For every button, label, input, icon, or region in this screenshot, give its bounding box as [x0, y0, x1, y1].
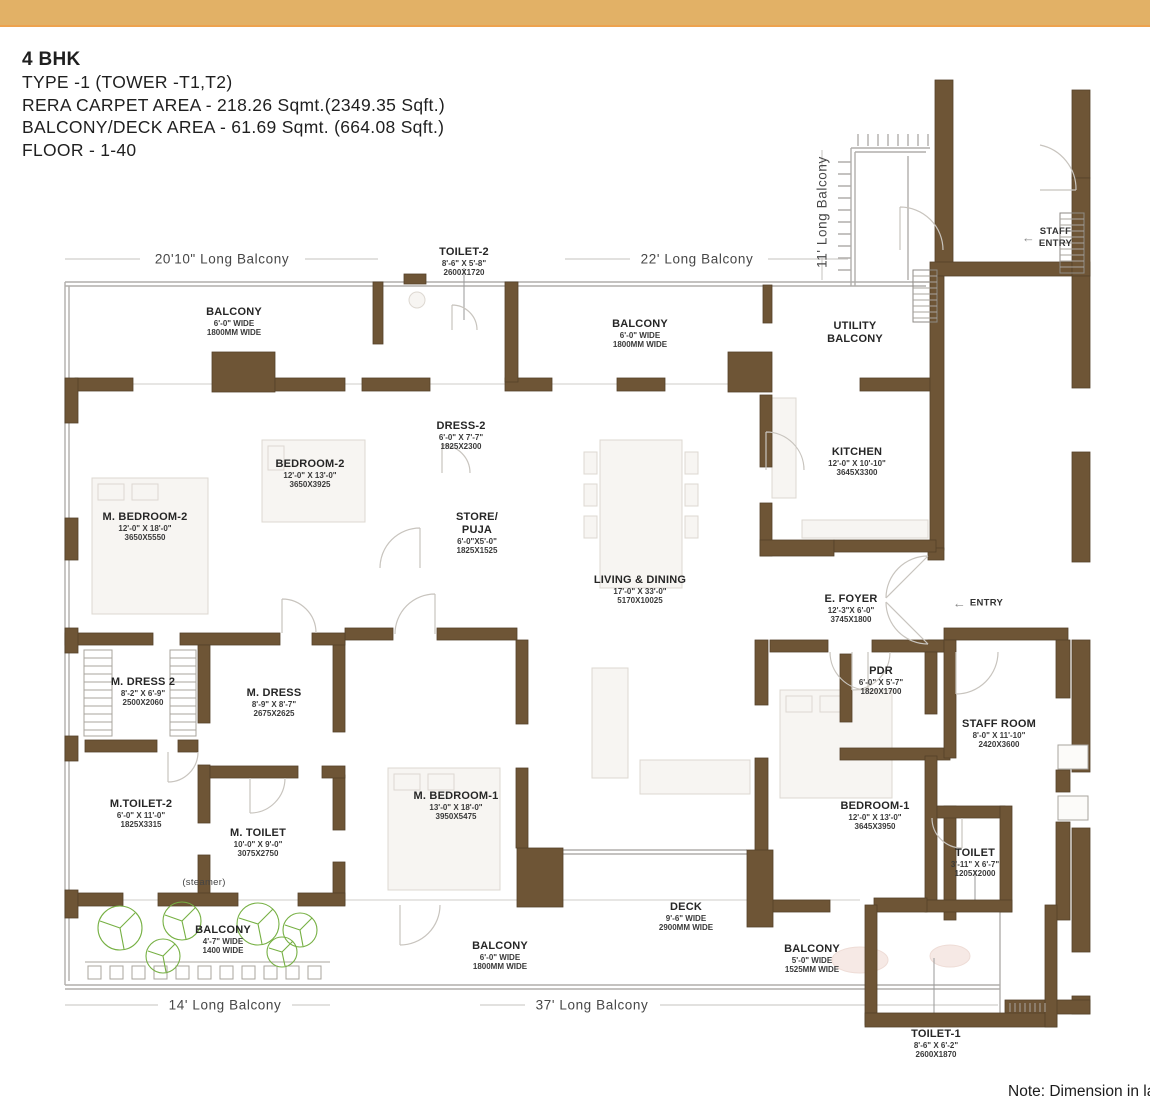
room-dimension: 6'-0" X 7'-7" [436, 433, 485, 442]
room-name: BALCONY [195, 924, 251, 937]
room-name: PUJA [456, 524, 498, 537]
room-dimension: 1525MM WIDE [784, 965, 840, 974]
room-name: BEDROOM-2 [275, 458, 344, 471]
room-dimension: 8'-6" X 5'-8" [439, 259, 489, 268]
room-label-deck: DECK9'-6" WIDE2900MM WIDE [659, 901, 713, 933]
room-dimension: 3650X3925 [275, 480, 344, 489]
room-label-balcony-bottom-right: BALCONY5'-0" WIDE1525MM WIDE [784, 943, 840, 975]
room-name: BEDROOM-1 [840, 800, 909, 813]
room-dimension: 12'-0" X 13'-0" [275, 471, 344, 480]
room-name: PDR [859, 665, 903, 678]
room-dimension: 2900MM WIDE [659, 923, 713, 932]
room-label-m-dress: M. DRESS8'-9" X 8'-7"2675X2625 [247, 687, 302, 719]
room-name: STORE/ [456, 511, 498, 524]
room-dimension: 13'-0" X 18'-0" [414, 803, 499, 812]
room-name: TOILET-1 [911, 1028, 961, 1041]
annotation-text: (steamer) [182, 877, 225, 889]
room-name: M. TOILET [230, 827, 286, 840]
room-name: KITCHEN [828, 446, 886, 459]
room-label-bedroom-2: BEDROOM-212'-0" X 13'-0"3650X3925 [275, 458, 344, 490]
room-dimension: 3950X5475 [414, 812, 499, 821]
room-name: M. DRESS [247, 687, 302, 700]
room-dimension: 2420X3600 [962, 740, 1036, 749]
room-label-balcony-top-mid: BALCONY6'-0" WIDE1800MM WIDE [612, 318, 668, 350]
room-dimension: 2600X1720 [439, 268, 489, 277]
room-name: DRESS-2 [436, 420, 485, 433]
room-label-staff-room: STAFF ROOM8'-0" X 11'-10"2420X3600 [962, 718, 1036, 750]
room-dimension: 2675X2625 [247, 709, 302, 718]
room-label-store-puja: STORE/PUJA6'-0"X5'-0"1825X1525 [456, 511, 498, 556]
room-label-balcony-bottom-mid: BALCONY6'-0" WIDE1800MM WIDE [472, 940, 528, 972]
room-dimension: 1825X2300 [436, 442, 485, 451]
room-dimension: 3745X1800 [825, 615, 878, 624]
room-label-balcony-bottom-left: BALCONY4'-7" WIDE1400 WIDE [195, 924, 251, 956]
room-dimension: 1825X3315 [110, 820, 172, 829]
room-name: LIVING & DINING [594, 574, 686, 587]
room-name: STAFF ROOM [962, 718, 1036, 731]
annotation-steamer: (steamer) [182, 877, 225, 889]
room-dimension: 1800MM WIDE [472, 962, 528, 971]
room-dimension: 12'-0" X 13'-0" [840, 813, 909, 822]
room-dimension: 3'-11" X 6'-7" [951, 860, 999, 869]
room-name: M.TOILET-2 [110, 798, 172, 811]
room-dimension: 12'-0" X 18'-0" [103, 524, 188, 533]
room-label-toilet: TOILET3'-11" X 6'-7"1205X2000 [951, 847, 999, 879]
room-dimension: 3645X3300 [828, 468, 886, 477]
room-dimension: 1400 WIDE [195, 946, 251, 955]
room-dimension: 1800MM WIDE [206, 328, 262, 337]
perimeter-label-balcony-22: 22' Long Balcony [641, 252, 754, 267]
room-label-m-bedroom-2: M. BEDROOM-212'-0" X 18'-0"3650X5550 [103, 511, 188, 543]
room-name: UTILITY [827, 320, 883, 333]
room-dimension: 8'-0" X 11'-10" [962, 731, 1036, 740]
room-label-toilet-1: TOILET-18'-6" X 6'-2"2600X1870 [911, 1028, 961, 1060]
perimeter-label-balcony-14: 14' Long Balcony [169, 998, 282, 1013]
room-dimension: 6'-0"X5'-0" [456, 537, 498, 546]
room-dimension: 6'-0" WIDE [612, 331, 668, 340]
floorplan-drawing [0, 0, 1150, 1100]
room-label-bedroom-1: BEDROOM-112'-0" X 13'-0"3645X3950 [840, 800, 909, 832]
room-dimension: 6'-0" WIDE [206, 319, 262, 328]
room-dimension: 9'-6" WIDE [659, 914, 713, 923]
room-dimension: 2600X1870 [911, 1050, 961, 1059]
room-label-e-foyer: E. FOYER12'-3"X 6'-0"3745X1800 [825, 593, 878, 625]
room-dimension: 5170X10025 [594, 596, 686, 605]
room-name: E. FOYER [825, 593, 878, 606]
room-label-living-dining: LIVING & DINING17'-0" X 33'-0"5170X10025 [594, 574, 686, 606]
room-label-dress-2: DRESS-26'-0" X 7'-7"1825X2300 [436, 420, 485, 452]
room-dimension: 8'-2" X 6'-9" [111, 689, 175, 698]
room-name: TOILET-2 [439, 246, 489, 259]
room-dimension: 3645X3950 [840, 822, 909, 831]
perimeter-label-balcony-37: 37' Long Balcony [536, 998, 649, 1013]
room-name: M. DRESS 2 [111, 676, 175, 689]
room-name: BALCONY [612, 318, 668, 331]
perimeter-label-balcony-11: 11' Long Balcony [815, 156, 830, 268]
room-name: BALCONY [784, 943, 840, 956]
room-label-m-toilet: M. TOILET10'-0" X 9'-0"3075X2750 [230, 827, 286, 859]
annotation-entry: ←ENTRY [953, 596, 1003, 611]
room-dimension: 12'-0" X 10'-10" [828, 459, 886, 468]
room-dimension: 3075X2750 [230, 849, 286, 858]
room-name: DECK [659, 901, 713, 914]
room-dimension: 8'-6" X 6'-2" [911, 1041, 961, 1050]
room-dimension: 6'-0" X 11'-0" [110, 811, 172, 820]
room-dimension: 1205X2000 [951, 869, 999, 878]
room-dimension: 1820X1700 [859, 687, 903, 696]
room-name: M. BEDROOM-1 [414, 790, 499, 803]
floorplan-page: 4 BHK TYPE -1 (TOWER -T1,T2) RERA CARPET… [0, 0, 1150, 1100]
annotation-staff-entry: ←STAFFENTRY [1022, 226, 1072, 250]
room-name: TOILET [951, 847, 999, 860]
left-arrow-icon: ← [1022, 231, 1035, 246]
room-name: BALCONY [472, 940, 528, 953]
room-dimension: 1825X1525 [456, 546, 498, 555]
room-label-toilet-2: TOILET-28'-6" X 5'-8"2600X1720 [439, 246, 489, 278]
room-label-kitchen: KITCHEN12'-0" X 10'-10"3645X3300 [828, 446, 886, 478]
planter-band-group [85, 962, 330, 979]
room-dimension: 5'-0" WIDE [784, 956, 840, 965]
left-arrow-icon: ← [953, 596, 966, 611]
dimension-note: Note: Dimension in lay [1008, 1083, 1150, 1100]
room-dimension: 6'-0" WIDE [472, 953, 528, 962]
perimeter-label-balcony-20-10: 20'10" Long Balcony [155, 252, 289, 267]
room-label-m-dress-2: M. DRESS 28'-2" X 6'-9"2500X2060 [111, 676, 175, 708]
room-dimension: 2500X2060 [111, 698, 175, 707]
room-label-balcony-top-left: BALCONY6'-0" WIDE1800MM WIDE [206, 306, 262, 338]
room-dimension: 17'-0" X 33'-0" [594, 587, 686, 596]
room-dimension: 4'-7" WIDE [195, 937, 251, 946]
room-label-pdr: PDR6'-0" X 5'-7"1820X1700 [859, 665, 903, 697]
room-label-utility-balcony: UTILITYBALCONY [827, 320, 883, 346]
annotation-text: ENTRY [970, 597, 1003, 609]
room-dimension: 1800MM WIDE [612, 340, 668, 349]
room-dimension: 3650X5550 [103, 533, 188, 542]
room-dimension: 6'-0" X 5'-7" [859, 678, 903, 687]
room-label-m-toilet-2: M.TOILET-26'-0" X 11'-0"1825X3315 [110, 798, 172, 830]
room-dimension: 8'-9" X 8'-7" [247, 700, 302, 709]
room-name: M. BEDROOM-2 [103, 511, 188, 524]
room-label-m-bedroom-1: M. BEDROOM-113'-0" X 18'-0"3950X5475 [414, 790, 499, 822]
room-name: BALCONY [206, 306, 262, 319]
room-dimension: 12'-3"X 6'-0" [825, 606, 878, 615]
room-name: BALCONY [827, 333, 883, 346]
annotation-text: STAFFENTRY [1039, 226, 1072, 250]
room-dimension: 10'-0" X 9'-0" [230, 840, 286, 849]
